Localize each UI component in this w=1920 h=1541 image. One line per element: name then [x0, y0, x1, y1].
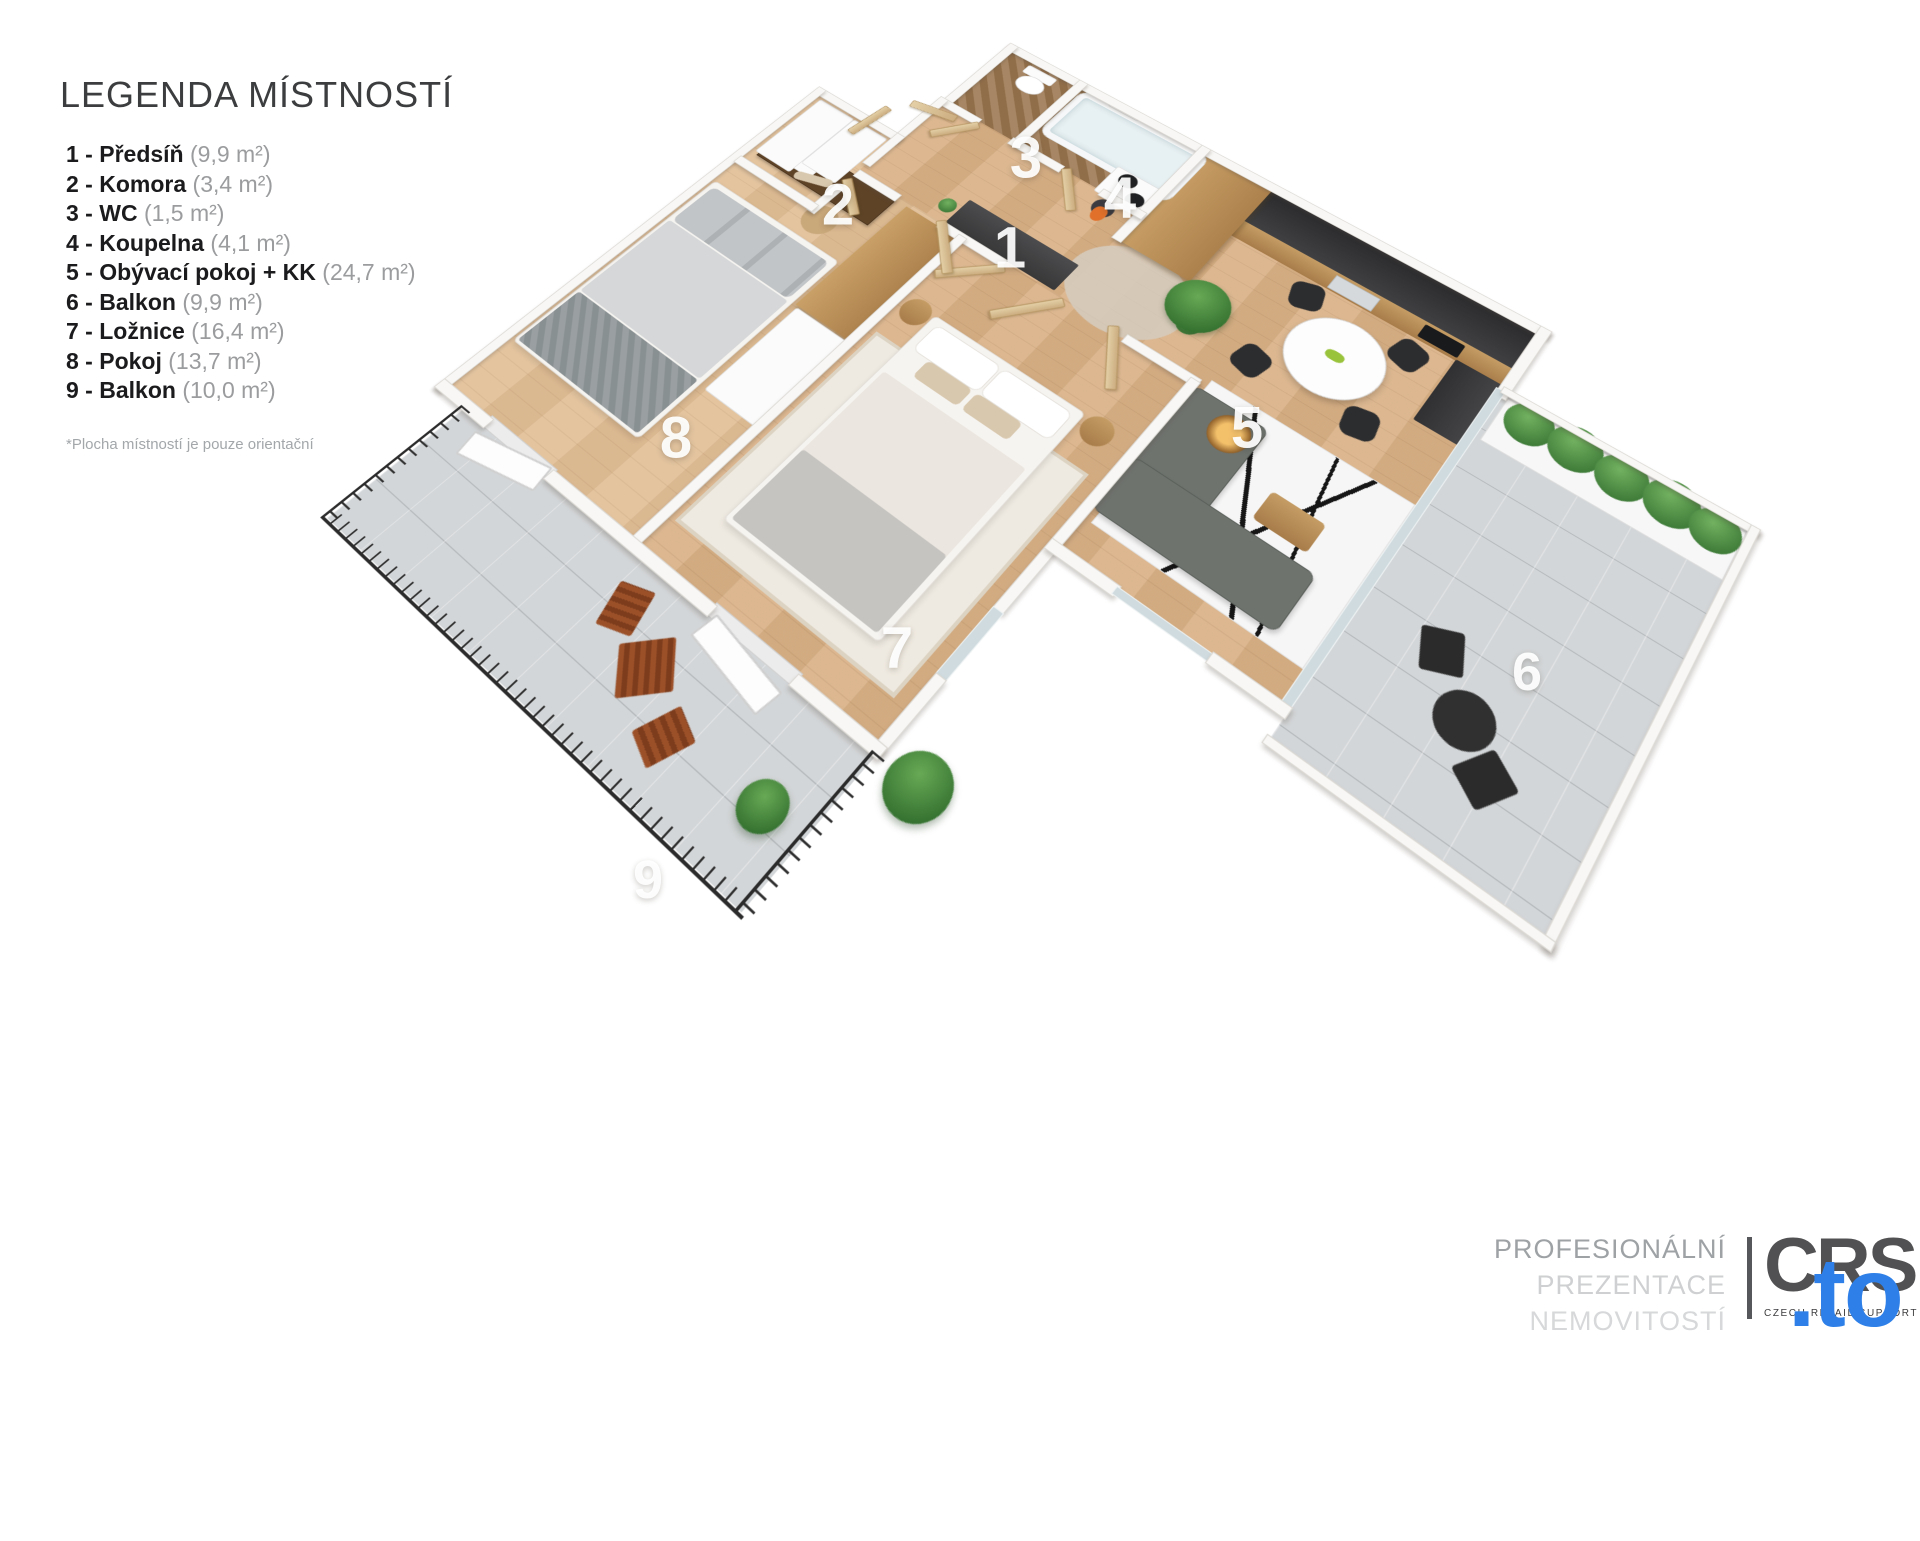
footer-divider — [1747, 1237, 1752, 1319]
legend-list: 1 - Předsíň (9,9 m²) 2 - Komora (3,4 m²)… — [66, 140, 453, 406]
room-number-4: 4 — [1104, 165, 1136, 232]
to-watermark: .to — [1788, 1236, 1902, 1349]
legend-item: 1 - Předsíň (9,9 m²) — [66, 140, 453, 170]
room-number-5: 5 — [1231, 395, 1263, 462]
room-number-9: 9 — [633, 849, 663, 911]
legend-title: LEGENDA MÍSTNOSTÍ — [60, 74, 453, 116]
legend-item: 3 - WC (1,5 m²) — [66, 199, 453, 229]
legend-item: 6 - Balkon (9,9 m²) — [66, 288, 453, 318]
room-number-7: 7 — [881, 615, 913, 682]
room-number-2: 2 — [822, 172, 854, 239]
footer-line: PROFESIONÁLNÍ — [1494, 1231, 1726, 1267]
room-number-3: 3 — [1010, 125, 1042, 192]
legend-item: 9 - Balkon (10,0 m²) — [66, 376, 453, 406]
legend-panel: LEGENDA MÍSTNOSTÍ 1 - Předsíň (9,9 m²) 2… — [60, 74, 453, 453]
room-number-6: 6 — [1512, 641, 1542, 703]
legend-item: 7 - Ložnice (16,4 m²) — [66, 317, 453, 347]
legend-item: 5 - Obývací pokoj + KK (24,7 m²) — [66, 258, 453, 288]
legend-item: 2 - Komora (3,4 m²) — [66, 170, 453, 200]
legend-footnote: *Plocha místností je pouze orientační — [66, 436, 453, 453]
footer-line: NEMOVITOSTÍ — [1494, 1303, 1726, 1339]
room-number-1: 1 — [994, 215, 1026, 282]
footer-line: PREZENTACE — [1494, 1267, 1726, 1303]
legend-item: 4 - Koupelna (4,1 m²) — [66, 229, 453, 259]
legend-item: 8 - Pokoj (13,7 m²) — [66, 347, 453, 377]
room-number-8: 8 — [660, 405, 692, 472]
wood-folding-table — [615, 637, 677, 698]
footer-tagline: PROFESIONÁLNÍ PREZENTACE NEMOVITOSTÍ — [1494, 1231, 1726, 1339]
